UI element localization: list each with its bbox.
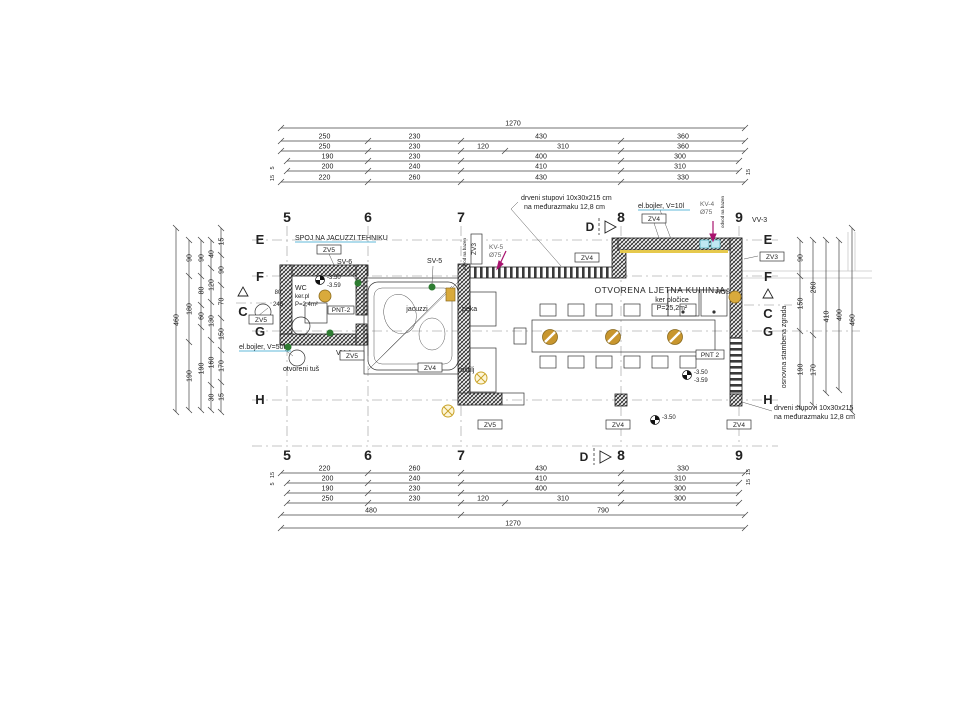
dim-text: 310 bbox=[557, 496, 569, 503]
dim-text: 160 bbox=[209, 357, 216, 369]
dim-text: 120 bbox=[477, 144, 489, 151]
zv5-label: ZV5 bbox=[323, 247, 335, 254]
gold-fixture bbox=[319, 290, 331, 302]
elevation-value: -3.59 bbox=[694, 378, 708, 384]
grid-row-h: H bbox=[763, 392, 772, 407]
grid-col-8: 8 bbox=[617, 209, 625, 225]
adjacent-building-label: osnovna stambena zgrada bbox=[781, 306, 788, 389]
dim-text: 250 bbox=[322, 496, 334, 503]
dim-text: 230 bbox=[409, 144, 421, 151]
dim-text: 130 bbox=[209, 315, 216, 327]
dim-text: 246 bbox=[273, 302, 284, 308]
section-c-label: C bbox=[238, 304, 248, 319]
grid-col-5: 5 bbox=[283, 209, 291, 225]
dim-text: 1270 bbox=[505, 521, 521, 528]
leader-line bbox=[511, 202, 561, 266]
grid-col-8: 8 bbox=[617, 447, 625, 463]
dim-text: 120 bbox=[477, 496, 489, 503]
note-top-line2: na međurazmaku 12,8 cm bbox=[524, 204, 605, 211]
dim-text: 15 bbox=[219, 393, 226, 401]
dim-text: 190 bbox=[322, 154, 334, 161]
chair bbox=[568, 356, 584, 368]
kv4-diameter: Ø75 bbox=[700, 209, 713, 216]
column bbox=[730, 394, 742, 406]
table-lamp-icon bbox=[543, 330, 683, 345]
dining-table bbox=[532, 320, 715, 352]
dim-text: 410 bbox=[535, 164, 547, 171]
dim-text: 430 bbox=[535, 175, 547, 182]
zv4-label: ZV4 bbox=[612, 422, 624, 429]
wall bbox=[730, 238, 742, 338]
drawing-sheet: C C D D 5 6 7 8 9 5 6 7 8 9 E F G H E F … bbox=[0, 0, 960, 720]
wall bbox=[356, 324, 367, 345]
dim-text: 120 bbox=[209, 279, 216, 291]
dim-text: 200 bbox=[322, 476, 334, 483]
dim-text: 230 bbox=[409, 134, 421, 141]
dim-text: 310 bbox=[674, 164, 686, 171]
grid-col-7: 7 bbox=[457, 209, 465, 225]
gold-fixture bbox=[729, 291, 741, 303]
dim-text: 250 bbox=[319, 144, 331, 151]
dim-text: 170 bbox=[219, 360, 226, 372]
spoj-label: SPOJ NA JACUZZI TEHNIKU bbox=[295, 235, 388, 242]
dim-text: 15 bbox=[746, 479, 752, 485]
chair bbox=[514, 328, 526, 344]
kv5-diameter: Ø75 bbox=[489, 252, 502, 259]
zv4-label: ZV4 bbox=[733, 422, 745, 429]
dim-text: 230 bbox=[409, 486, 421, 493]
dim-text: 410 bbox=[824, 311, 831, 323]
dim-text: 330 bbox=[677, 466, 689, 473]
chair bbox=[540, 304, 556, 316]
zv4-label: ZV4 bbox=[581, 255, 593, 262]
chair bbox=[624, 304, 640, 316]
dim-text: 240 bbox=[409, 476, 421, 483]
sink-supply bbox=[711, 240, 720, 248]
dim-text: 360 bbox=[677, 134, 689, 141]
dimension-chains: 1270250230430360250230120310360190230400… bbox=[173, 121, 857, 532]
dim-text: 400 bbox=[535, 154, 547, 161]
grid-row-g: G bbox=[255, 324, 265, 339]
pnt2-wc-label: PNT-2 bbox=[332, 307, 351, 314]
chair bbox=[596, 304, 612, 316]
grid-col-9: 9 bbox=[735, 447, 743, 463]
elevation-value: -3.50 bbox=[694, 370, 708, 376]
wall bbox=[458, 264, 470, 405]
dim-text: 240 bbox=[409, 164, 421, 171]
sv6-label: SV-6 bbox=[337, 259, 352, 266]
shower-head bbox=[289, 350, 305, 366]
grid-row-e: E bbox=[764, 232, 773, 247]
zv3-label: ZV3 bbox=[766, 254, 778, 261]
wall bbox=[280, 265, 368, 276]
dim-text: 40 bbox=[209, 250, 216, 258]
grid-col-7: 7 bbox=[457, 447, 465, 463]
colonnade bbox=[470, 267, 618, 278]
elevation-value: -3.50 bbox=[662, 415, 676, 421]
drain-note: odvod na bazen bbox=[462, 237, 467, 270]
dim-text: 90 bbox=[199, 254, 206, 262]
dim-text: 260 bbox=[811, 282, 818, 294]
dim-text: 260 bbox=[409, 466, 421, 473]
rostilj-label: roštilj bbox=[458, 367, 475, 374]
dim-text: 5 bbox=[270, 166, 276, 169]
kitchen-title: OTVORENA LJETNA KUHINJA bbox=[595, 285, 726, 295]
grid-row-g: G bbox=[763, 324, 773, 339]
dim-text: 190 bbox=[199, 363, 206, 375]
grid-col-9: 9 bbox=[735, 209, 743, 225]
zv4-label: ZV4 bbox=[648, 216, 660, 223]
section-d-label: D bbox=[580, 450, 589, 464]
dim-text: 90 bbox=[187, 254, 194, 262]
dim-text: 220 bbox=[319, 175, 331, 182]
dim-text: 15 bbox=[219, 238, 226, 246]
grid-col-6: 6 bbox=[364, 447, 372, 463]
section-d-label: D bbox=[586, 220, 595, 234]
shower-label: otvoreni tuš bbox=[283, 366, 320, 373]
dim-text: 200 bbox=[322, 164, 334, 171]
counter-strip bbox=[620, 250, 728, 253]
grid-col-6: 6 bbox=[364, 209, 372, 225]
dim-text: 330 bbox=[677, 175, 689, 182]
dim-text: 30 bbox=[209, 394, 216, 402]
zv5-label: ZV5 bbox=[346, 353, 358, 360]
column bbox=[615, 394, 627, 406]
pnt2-label: PNT 2 bbox=[701, 352, 720, 359]
dim-text: 190 bbox=[187, 370, 194, 382]
washbasin bbox=[292, 317, 310, 335]
zv5-label: ZV5 bbox=[484, 422, 496, 429]
grid-row-h: H bbox=[255, 392, 264, 407]
dim-text: 150 bbox=[798, 298, 805, 310]
dim-text: 260 bbox=[409, 175, 421, 182]
sink-supply bbox=[700, 240, 709, 248]
dim-text: 70 bbox=[219, 298, 226, 306]
dim-text: 150 bbox=[219, 328, 226, 340]
wc-title: WC bbox=[295, 285, 307, 292]
sv5-label: SV-5 bbox=[427, 258, 442, 265]
dim-text: 230 bbox=[409, 154, 421, 161]
zv3-label: ZV3 bbox=[471, 243, 478, 255]
dim-text: 790 bbox=[597, 508, 609, 515]
dim-text: 300 bbox=[674, 496, 686, 503]
dim-text: 400 bbox=[535, 486, 547, 493]
colonnade bbox=[730, 338, 742, 394]
dim-text: 60 bbox=[199, 312, 206, 320]
peka-label: peka bbox=[462, 306, 477, 313]
vv3-label: VV-3 bbox=[752, 217, 767, 224]
wall bbox=[458, 393, 502, 405]
dim-text: 410 bbox=[535, 476, 547, 483]
dim-text: 190 bbox=[798, 364, 805, 376]
zv5-label: ZV5 bbox=[255, 317, 267, 324]
dim-text: 460 bbox=[850, 314, 857, 326]
grid-row-f: F bbox=[256, 269, 264, 284]
dim-text: 430 bbox=[535, 134, 547, 141]
dim-text: 220 bbox=[319, 466, 331, 473]
gold-fixture bbox=[446, 288, 455, 301]
dim-text: 190 bbox=[322, 486, 334, 493]
wc-area: P=2,4m² bbox=[295, 302, 318, 308]
section-c-label: C bbox=[763, 306, 773, 321]
elevation-value: -3.59 bbox=[327, 283, 341, 289]
dim-text: 80 bbox=[199, 287, 206, 295]
dim-text: 480 bbox=[365, 508, 377, 515]
grid-row-e: E bbox=[256, 232, 265, 247]
grid-row-f: F bbox=[764, 269, 772, 284]
kv4-label: KV-4 bbox=[700, 201, 714, 208]
dim-text: 15 bbox=[270, 472, 276, 478]
dim-text: 310 bbox=[674, 476, 686, 483]
wall bbox=[356, 265, 367, 315]
dim-text: 360 bbox=[677, 144, 689, 151]
dim-text: 430 bbox=[535, 466, 547, 473]
elevation-value: -3.50 bbox=[327, 275, 341, 281]
zv4-label: ZV4 bbox=[424, 365, 436, 372]
dim-text: 310 bbox=[557, 144, 569, 151]
dim-text: 5 bbox=[270, 482, 276, 485]
dim-text: 300 bbox=[674, 154, 686, 161]
dim-text: 80 bbox=[275, 290, 282, 296]
note-top-line1: drveni stupovi 10x30x215 cm bbox=[521, 195, 612, 202]
dim-text: 90 bbox=[219, 266, 226, 274]
boiler-10l-label: el.bojler, V=10l bbox=[638, 203, 685, 210]
wall bbox=[618, 238, 742, 250]
wall bbox=[280, 334, 368, 345]
note-bottom-line2: na međurazmaku 12,8 cm bbox=[774, 414, 855, 421]
dim-text: 460 bbox=[174, 314, 181, 326]
dim-text: 300 bbox=[674, 486, 686, 493]
floor-plan-canvas: C C D D 5 6 7 8 9 5 6 7 8 9 E F G H E F … bbox=[0, 0, 960, 720]
kv5-label: KV-5 bbox=[489, 244, 503, 251]
dim-text: 90 bbox=[798, 254, 805, 262]
jacuzzi-label: jacuzzi bbox=[405, 306, 428, 313]
kitchen-area: P=25,2m² bbox=[657, 305, 688, 312]
dim-text: 1270 bbox=[505, 121, 521, 128]
dim-text: 15 bbox=[746, 469, 752, 475]
dim-text: 180 bbox=[187, 303, 194, 315]
kitchen-finish: ker pločice bbox=[655, 297, 689, 304]
dim-text: 400 bbox=[837, 309, 844, 321]
dim-text: 250 bbox=[319, 134, 331, 141]
chair bbox=[680, 356, 696, 368]
wc-finish: ker.pl bbox=[295, 294, 309, 300]
chair bbox=[596, 356, 612, 368]
dim-text: 15 bbox=[746, 169, 752, 175]
dim-text: 230 bbox=[409, 496, 421, 503]
boiler-50l-label: el.bojler, V=50l bbox=[239, 344, 286, 351]
chair bbox=[540, 356, 556, 368]
dim-text: 170 bbox=[811, 364, 818, 376]
chair bbox=[652, 356, 668, 368]
drain-note: odvod na bazen bbox=[720, 195, 725, 228]
dim-text: 15 bbox=[270, 175, 276, 181]
chair bbox=[624, 356, 640, 368]
chair bbox=[568, 304, 584, 316]
grid-col-5: 5 bbox=[283, 447, 291, 463]
